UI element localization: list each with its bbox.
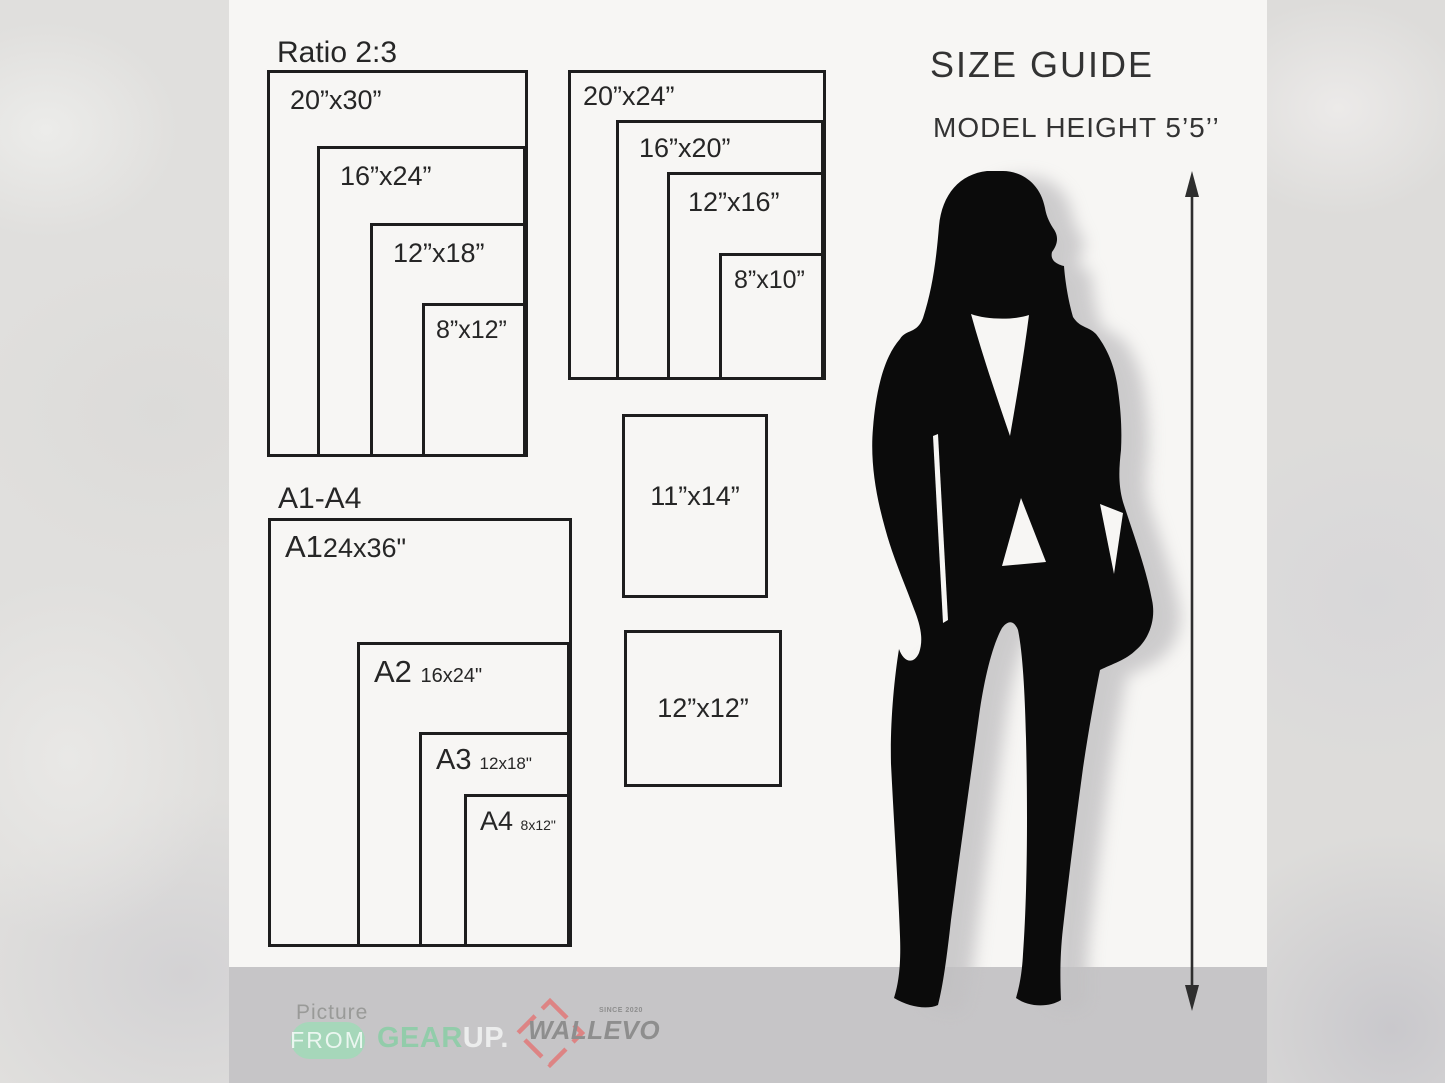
model-silhouette	[860, 168, 1160, 1013]
size-box-label: A2 16x24"	[374, 654, 482, 690]
size-box-8x10: 8”x10”	[719, 253, 824, 380]
marble-background-right	[1267, 0, 1445, 1083]
marble-background-left	[0, 0, 229, 1083]
size-box-label: 20”x24”	[583, 81, 675, 112]
size-box-label: 16”x20”	[639, 133, 731, 164]
size-box-label: 16”x24”	[340, 161, 432, 192]
ratio-heading: Ratio 2:3	[277, 36, 397, 70]
size-box-label: A4 8x12"	[480, 806, 556, 837]
gearup-logo: GEARUP.	[377, 1022, 509, 1055]
wallevo-wordmark: WALLEVO	[528, 1015, 660, 1046]
size-box-label: 12”x12”	[657, 693, 749, 724]
size-box-label: 11”x14”	[650, 481, 740, 512]
size-box-11x14: 11”x14”	[622, 414, 768, 598]
from-label: FROM	[290, 1027, 366, 1054]
wallevo-logo: SINCE 2020 WALLEVO	[515, 998, 645, 1068]
size-box-label: 8”x10”	[734, 266, 805, 295]
a-series-heading: A1-A4	[278, 482, 361, 516]
size-box-label: 12”x18”	[393, 238, 485, 269]
size-box-label: 20”x30”	[290, 85, 382, 116]
height-arrow-icon	[1178, 165, 1208, 1017]
a-code-label: A1	[285, 529, 323, 564]
size-guide-panel: Ratio 2:3 A1-A4 SIZE GUIDE MODEL HEIGHT …	[229, 0, 1267, 1083]
a-size-label: 16x24"	[421, 665, 483, 687]
a-size-label: 12x18"	[480, 754, 532, 773]
size-box-12x12: 12”x12”	[624, 630, 782, 787]
gearup-gear-text: GEAR	[377, 1022, 463, 1054]
a-size-label: 8x12"	[521, 817, 556, 833]
model-silhouette-graphic	[860, 168, 1160, 1013]
gearup-up-text: UP.	[463, 1022, 509, 1054]
size-box-label: A3 12x18"	[436, 744, 532, 777]
size-box-label: A124x36"	[285, 529, 406, 565]
a-code-label: A4	[480, 806, 513, 836]
a-code-label: A3	[436, 744, 471, 776]
page-title: SIZE GUIDE	[930, 44, 1154, 86]
size-box-label: 12”x16”	[688, 187, 780, 218]
a-size-label: 24x36"	[323, 533, 406, 563]
wallevo-since-text: SINCE 2020	[599, 1007, 643, 1014]
a-code-label: A2	[374, 654, 412, 689]
picture-from-logo-pill: FROM	[291, 1022, 365, 1059]
size-box-a4: A4 8x12"	[464, 794, 570, 947]
size-box-label: 8”x12”	[436, 316, 507, 345]
model-height-label: MODEL HEIGHT 5’5’’	[933, 112, 1220, 144]
size-box-8x12: 8”x12”	[422, 303, 526, 457]
